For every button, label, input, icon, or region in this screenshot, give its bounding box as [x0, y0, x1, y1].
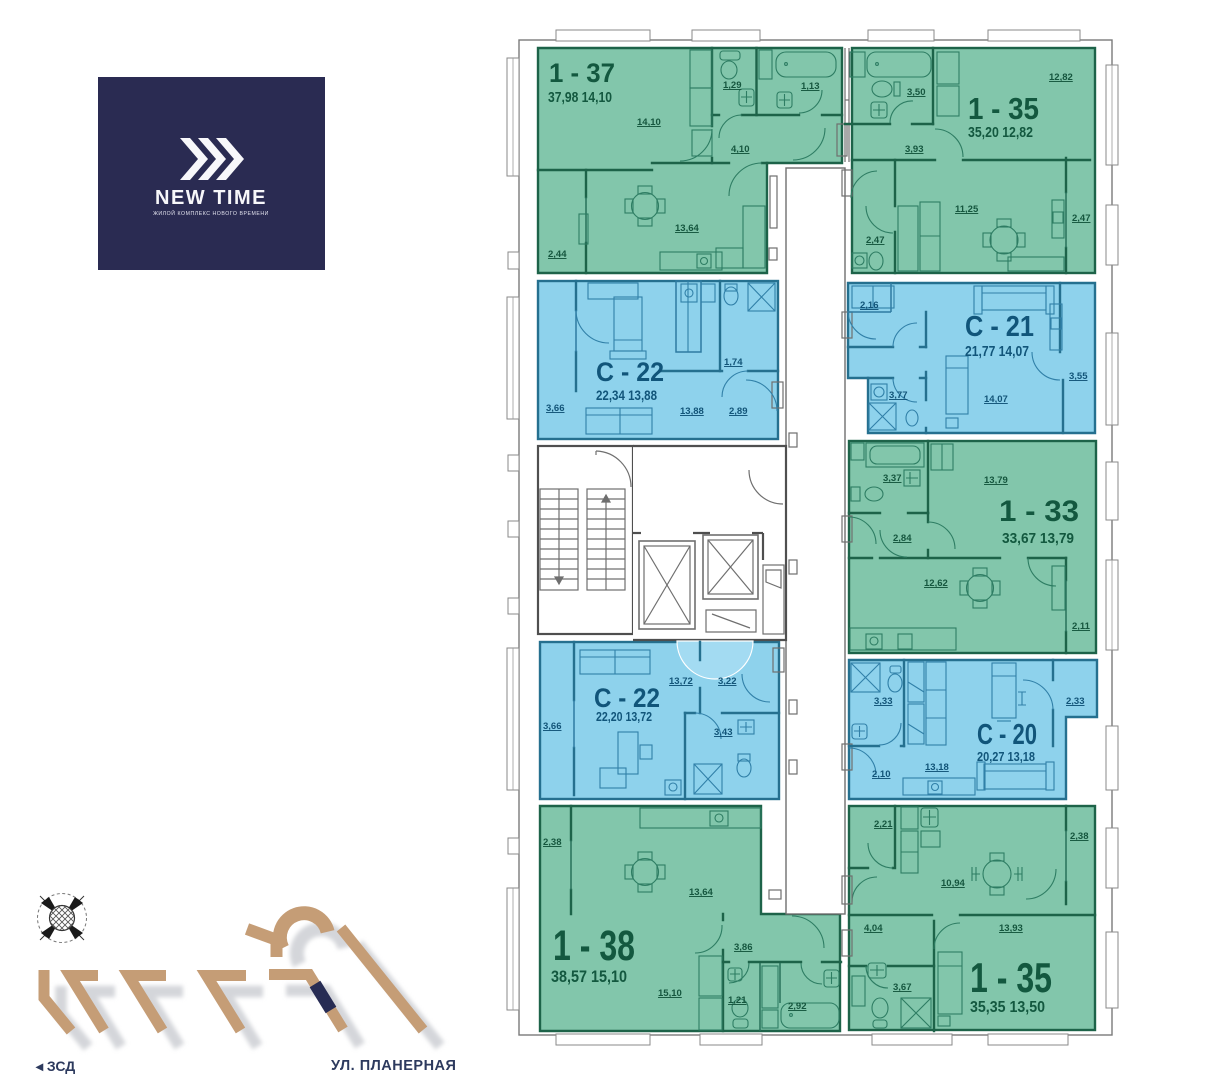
- svg-text:C - 21: C - 21: [965, 311, 1034, 343]
- svg-text:3,66: 3,66: [543, 721, 562, 732]
- svg-text:13,88: 13,88: [680, 406, 704, 417]
- svg-text:4,10: 4,10: [731, 144, 750, 155]
- svg-text:2,10: 2,10: [872, 769, 891, 780]
- svg-text:1,21: 1,21: [728, 995, 747, 1006]
- svg-text:1 - 33: 1 - 33: [999, 495, 1079, 528]
- svg-text:УЛ. ПЛАНЕРНАЯ: УЛ. ПЛАНЕРНАЯ: [331, 1058, 456, 1074]
- svg-text:1 - 35: 1 - 35: [968, 91, 1039, 126]
- svg-text:37,98 14,10: 37,98 14,10: [548, 90, 612, 106]
- svg-text:3,66: 3,66: [546, 403, 565, 414]
- svg-text:2,89: 2,89: [729, 406, 748, 417]
- svg-text:12,62: 12,62: [924, 578, 948, 589]
- svg-text:1,74: 1,74: [724, 357, 743, 368]
- svg-text:3,93: 3,93: [905, 144, 924, 155]
- svg-text:35,35 13,50: 35,35 13,50: [970, 999, 1045, 1016]
- svg-text:13,18: 13,18: [925, 762, 949, 773]
- svg-text:2,84: 2,84: [893, 533, 912, 544]
- svg-text:3,77: 3,77: [889, 390, 908, 401]
- svg-text:2,92: 2,92: [788, 1001, 807, 1012]
- svg-text:13,93: 13,93: [999, 923, 1023, 934]
- svg-text:35,20 12,82: 35,20 12,82: [968, 124, 1033, 141]
- svg-text:13,64: 13,64: [689, 887, 713, 898]
- svg-text:3,50: 3,50: [907, 87, 926, 98]
- svg-text:3,86: 3,86: [734, 942, 753, 953]
- svg-text:14,07: 14,07: [984, 394, 1008, 405]
- svg-text:2,47: 2,47: [1072, 213, 1091, 224]
- svg-text:13,64: 13,64: [675, 223, 699, 234]
- svg-text:22,34 13,88: 22,34 13,88: [596, 387, 657, 403]
- svg-text:1 - 38: 1 - 38: [553, 922, 635, 970]
- svg-text:1,13: 1,13: [801, 81, 820, 92]
- svg-text:◂ ЗСД: ◂ ЗСД: [35, 1058, 75, 1074]
- svg-text:3,55: 3,55: [1069, 371, 1088, 382]
- svg-text:3,67: 3,67: [893, 982, 912, 993]
- svg-text:3,33: 3,33: [874, 696, 893, 707]
- svg-text:1 - 37: 1 - 37: [549, 58, 615, 88]
- svg-text:2,44: 2,44: [548, 249, 567, 260]
- svg-text:2,38: 2,38: [1070, 831, 1089, 842]
- svg-text:11,25: 11,25: [955, 204, 979, 215]
- svg-text:2,38: 2,38: [543, 837, 562, 848]
- svg-text:4,04: 4,04: [864, 923, 883, 934]
- svg-text:13,72: 13,72: [669, 676, 693, 687]
- svg-text:20,27 13,18: 20,27 13,18: [977, 749, 1035, 764]
- svg-text:1,29: 1,29: [723, 80, 742, 91]
- svg-text:15,10: 15,10: [658, 988, 682, 999]
- svg-text:2,33: 2,33: [1066, 696, 1085, 707]
- svg-text:3,37: 3,37: [883, 473, 902, 484]
- svg-text:2,11: 2,11: [1072, 621, 1091, 632]
- svg-text:22,20 13,72: 22,20 13,72: [596, 709, 652, 724]
- svg-text:3,22: 3,22: [718, 676, 737, 687]
- svg-text:2,47: 2,47: [866, 235, 885, 246]
- svg-text:C - 20: C - 20: [977, 719, 1037, 751]
- svg-text:C - 22: C - 22: [596, 357, 664, 387]
- svg-text:13,79: 13,79: [984, 475, 1008, 486]
- svg-text:2,21: 2,21: [874, 819, 893, 830]
- svg-text:1 - 35: 1 - 35: [970, 954, 1052, 1001]
- svg-text:ЖИЛОЙ КОМПЛЕКС НОВОГО ВРЕМЕНИ: ЖИЛОЙ КОМПЛЕКС НОВОГО ВРЕМЕНИ: [153, 209, 269, 217]
- svg-text:10,94: 10,94: [941, 878, 965, 889]
- svg-text:38,57 15,10: 38,57 15,10: [551, 968, 627, 986]
- svg-text:14,10: 14,10: [637, 117, 661, 128]
- svg-text:2,16: 2,16: [860, 300, 879, 311]
- svg-text:21,77 14,07: 21,77 14,07: [965, 344, 1029, 360]
- svg-text:3,43: 3,43: [714, 727, 733, 738]
- svg-text:12,82: 12,82: [1049, 72, 1073, 83]
- svg-text:33,67 13,79: 33,67 13,79: [1002, 531, 1074, 547]
- svg-text:NEW TIME: NEW TIME: [155, 187, 267, 209]
